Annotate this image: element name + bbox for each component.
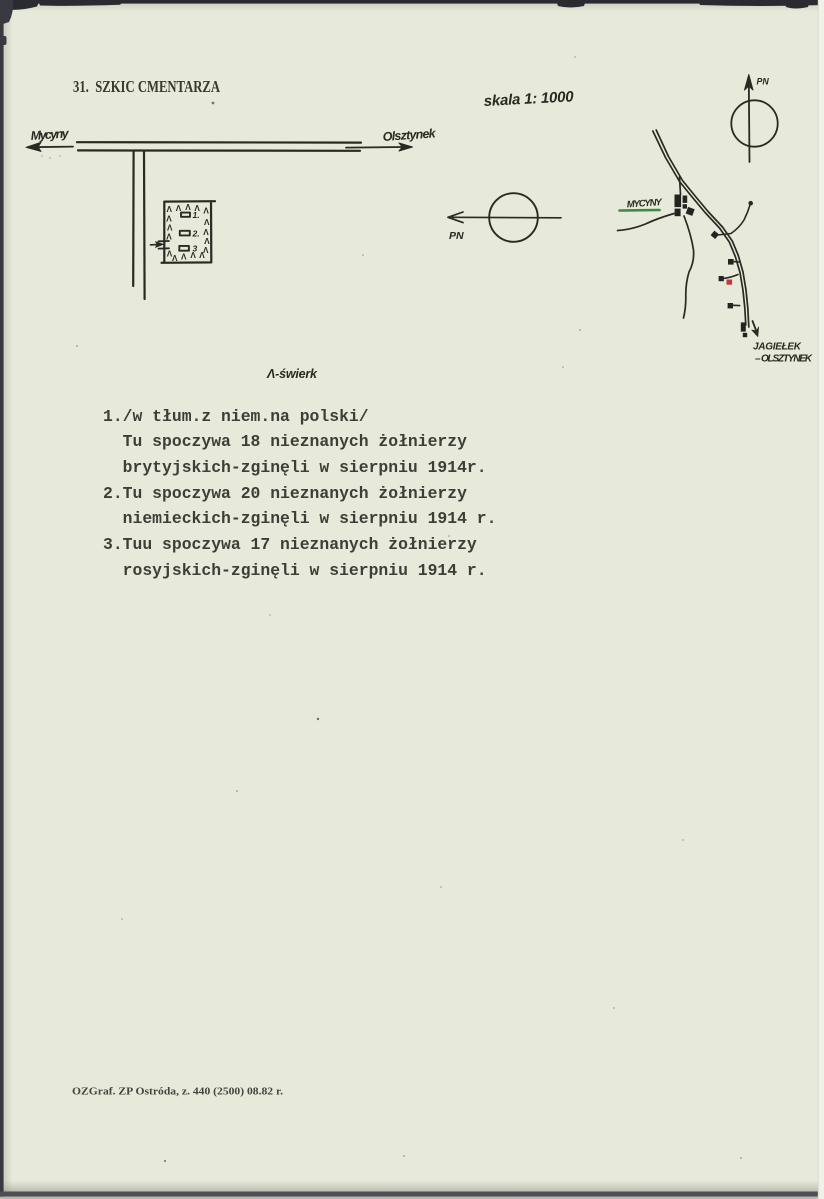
svg-text:Λ: Λ — [194, 204, 200, 213]
svg-text:Λ: Λ — [167, 224, 173, 233]
svg-text:Λ: Λ — [166, 233, 172, 242]
svg-text:PN: PN — [449, 230, 464, 242]
svg-text:Olsztynek: Olsztynek — [382, 126, 437, 144]
svg-text:MYCYNY: MYCYNY — [626, 197, 663, 211]
svg-text:Λ: Λ — [190, 251, 196, 260]
svg-text:Λ: Λ — [204, 237, 210, 246]
svg-text:Λ: Λ — [199, 251, 205, 260]
svg-text:Λ: Λ — [172, 254, 178, 263]
svg-text:Λ-świerk: Λ-świerk — [266, 367, 318, 381]
svg-text:Λ: Λ — [203, 206, 209, 215]
svg-text:Λ: Λ — [176, 204, 182, 213]
svg-text:Λ: Λ — [185, 203, 191, 212]
svg-text:Λ: Λ — [166, 215, 172, 224]
svg-text:– OLSZTYNEK: – OLSZTYNEK — [755, 354, 813, 365]
svg-text:Λ: Λ — [203, 228, 209, 237]
svg-text:Λ: Λ — [204, 218, 210, 227]
svg-text:OZGraf. ZP Ostróda, z. 440 (25: OZGraf. ZP Ostróda, z. 440 (2500) 08.82 … — [72, 1086, 283, 1098]
svg-text:2.: 2. — [192, 229, 200, 239]
svg-text:31. SZKIC CMENTARZA: 31. SZKIC CMENTARZA — [73, 77, 220, 96]
svg-text:JAGIEŁEK: JAGIEŁEK — [753, 342, 802, 353]
svg-text:Λ: Λ — [181, 252, 187, 261]
svg-text:Mycyny: Mycyny — [30, 126, 70, 143]
svg-text:Λ: Λ — [167, 205, 173, 214]
